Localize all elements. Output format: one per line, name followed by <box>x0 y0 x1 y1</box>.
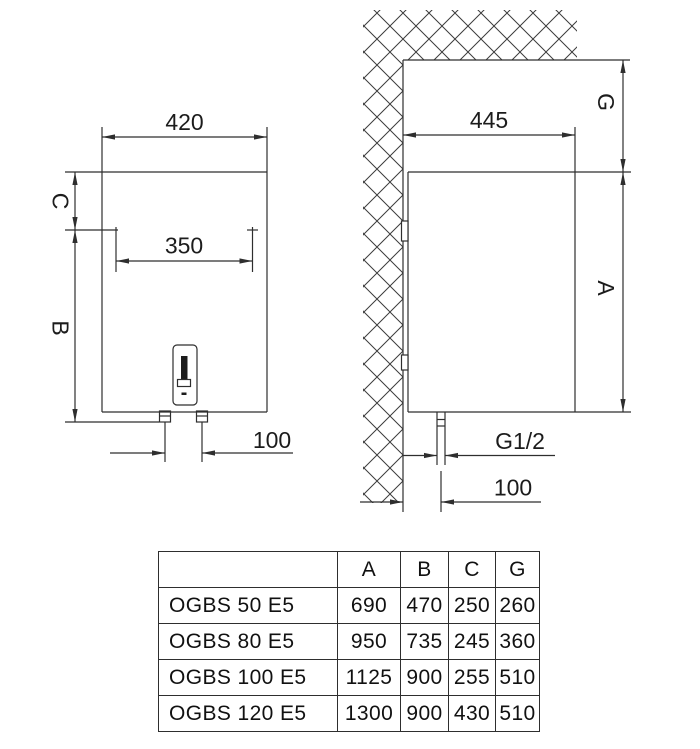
value-C: 430 <box>449 696 496 732</box>
value-A: 1125 <box>338 660 401 696</box>
arrow-up-icon <box>620 172 625 185</box>
dim-A <box>620 172 625 412</box>
label-width-420: 420 <box>165 109 203 135</box>
arrow-down-icon <box>620 399 625 412</box>
arrow-down-icon <box>72 409 77 422</box>
model-name: OGBS 80 E5 <box>159 624 338 660</box>
table-row: OGBS 80 E5 950 735 245 360 <box>159 624 540 660</box>
value-A: 1300 <box>338 696 401 732</box>
dimensions-table: A B C G OGBS 50 E5 690 470 250 260 OGBS … <box>158 551 540 732</box>
header-C: C <box>449 552 496 588</box>
arrow-right-icon <box>562 132 575 137</box>
dim-G <box>620 60 625 172</box>
arrow-right-icon <box>152 450 165 455</box>
arrow-left-icon <box>102 134 115 139</box>
dim-B <box>65 230 159 422</box>
value-B: 900 <box>401 696 449 732</box>
table-row: OGBS 50 E5 690 470 250 260 <box>159 588 540 624</box>
arrow-left-icon <box>403 132 416 137</box>
arrow-right-icon <box>424 453 437 458</box>
value-C: 255 <box>449 660 496 696</box>
value-B: 900 <box>401 660 449 696</box>
arrow-right-icon <box>254 134 267 139</box>
model-name: OGBS 100 E5 <box>159 660 338 696</box>
side-pipe-connection <box>437 412 445 512</box>
value-A: 690 <box>338 588 401 624</box>
technical-drawing-page: 420 350 C B 100 445 G A G1/2 100 A B C G <box>0 0 700 749</box>
value-G: 510 <box>496 696 540 732</box>
side-tank-outline <box>408 127 631 412</box>
front-tank-outline <box>65 172 267 412</box>
label-holes-350: 350 <box>165 233 203 259</box>
thermostat-panel <box>173 345 197 405</box>
dimension-labels: 420 350 C B 100 445 G A G1/2 100 <box>48 93 620 500</box>
value-C: 250 <box>449 588 496 624</box>
header-empty <box>159 552 338 588</box>
arrow-right-icon <box>240 258 253 263</box>
header-A: A <box>338 552 401 588</box>
label-height-A: A <box>593 280 619 296</box>
label-height-B: B <box>48 320 74 335</box>
label-offset-C: C <box>48 193 74 210</box>
value-B: 470 <box>401 588 449 624</box>
dim-445 <box>403 132 575 137</box>
label-depth-445: 445 <box>470 107 508 133</box>
value-A: 950 <box>338 624 401 660</box>
arrow-up-icon <box>620 60 625 73</box>
label-thread-G12: G1/2 <box>495 428 545 454</box>
header-B: B <box>401 552 449 588</box>
header-G: G <box>496 552 540 588</box>
arrow-left-icon <box>445 453 458 458</box>
table-row: OGBS 100 E5 1125 900 255 510 <box>159 660 540 696</box>
arrow-down-icon <box>620 159 625 172</box>
model-name: OGBS 120 E5 <box>159 696 338 732</box>
arrow-down-icon <box>72 217 77 230</box>
table-row: OGBS 120 E5 1300 900 430 510 <box>159 696 540 732</box>
front-pipe-connections <box>160 411 208 462</box>
value-G: 510 <box>496 660 540 696</box>
value-G: 360 <box>496 624 540 660</box>
label-offset-100: 100 <box>494 475 532 501</box>
value-B: 735 <box>401 624 449 660</box>
label-gap-G: G <box>593 93 619 111</box>
arrow-left-icon <box>116 258 129 263</box>
arrow-up-icon <box>72 230 77 243</box>
model-name: OGBS 50 E5 <box>159 588 338 624</box>
label-pipes-100: 100 <box>253 427 291 453</box>
table-header-row: A B C G <box>159 552 540 588</box>
front-view <box>65 127 293 462</box>
arrow-up-icon <box>72 172 77 185</box>
value-G: 260 <box>496 588 540 624</box>
arrow-left-icon <box>202 450 215 455</box>
arrow-left-icon <box>441 499 454 504</box>
value-C: 245 <box>449 624 496 660</box>
